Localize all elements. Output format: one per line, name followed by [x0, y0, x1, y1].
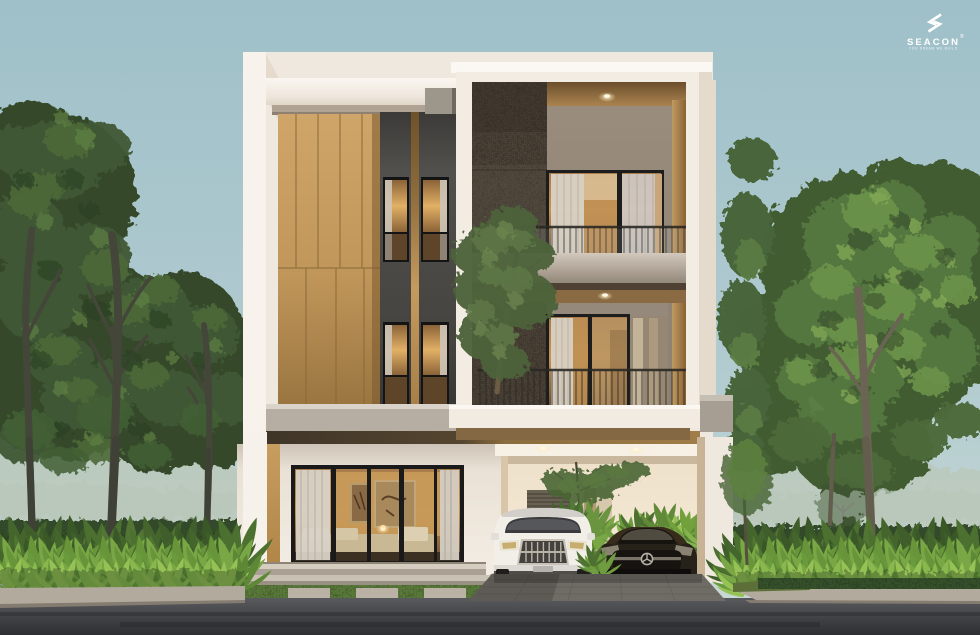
- svg-text:YOU DREAM WE BUILD: YOU DREAM WE BUILD: [909, 47, 958, 51]
- svg-text:®: ®: [960, 33, 964, 40]
